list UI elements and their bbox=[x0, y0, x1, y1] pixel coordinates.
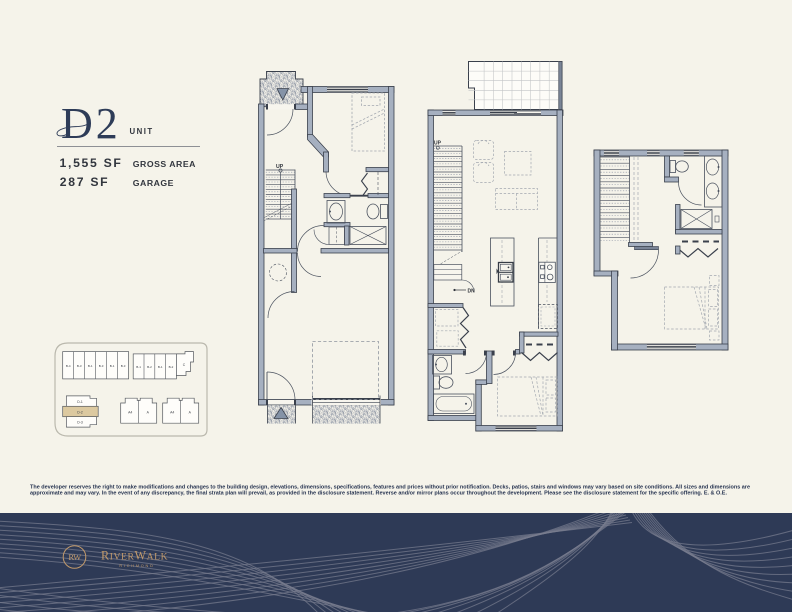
svg-text:approximate and may vary. In t: approximate and may vary. In the event o… bbox=[30, 491, 728, 497]
svg-text:RIVERWALK: RIVERWALK bbox=[101, 549, 168, 563]
svg-text:RW: RW bbox=[68, 552, 82, 562]
svg-text:The developer reserves the rig: The developer reserves the right to make… bbox=[30, 484, 750, 490]
svg-text:RICHMOND: RICHMOND bbox=[119, 564, 154, 568]
